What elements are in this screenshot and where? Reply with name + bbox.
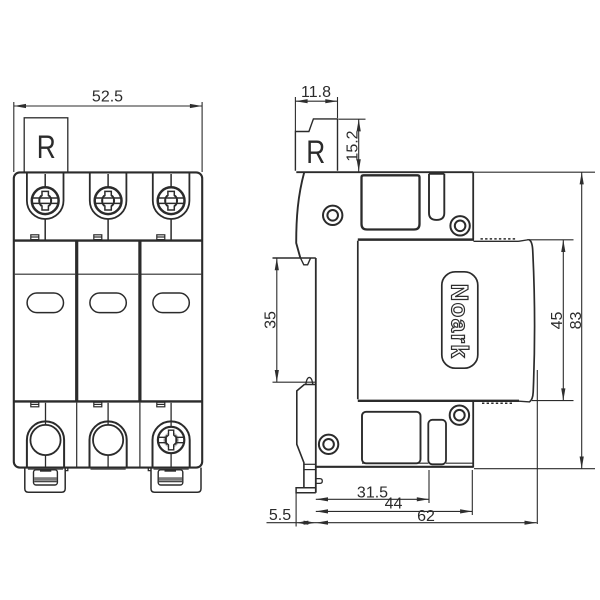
svg-text:5.5: 5.5 <box>269 507 291 524</box>
svg-text:83: 83 <box>568 312 585 330</box>
svg-text:31.5: 31.5 <box>357 485 388 502</box>
svg-text:45: 45 <box>549 312 566 330</box>
svg-text:Noark: Noark <box>446 284 473 360</box>
svg-text:11.8: 11.8 <box>301 84 331 101</box>
svg-text:R: R <box>37 129 56 165</box>
svg-text:35: 35 <box>263 311 280 329</box>
svg-text:52.5: 52.5 <box>92 89 123 106</box>
svg-text:R: R <box>306 134 325 170</box>
svg-text:62: 62 <box>417 508 435 525</box>
svg-text:44: 44 <box>385 496 403 513</box>
svg-text:15.2: 15.2 <box>345 130 362 161</box>
